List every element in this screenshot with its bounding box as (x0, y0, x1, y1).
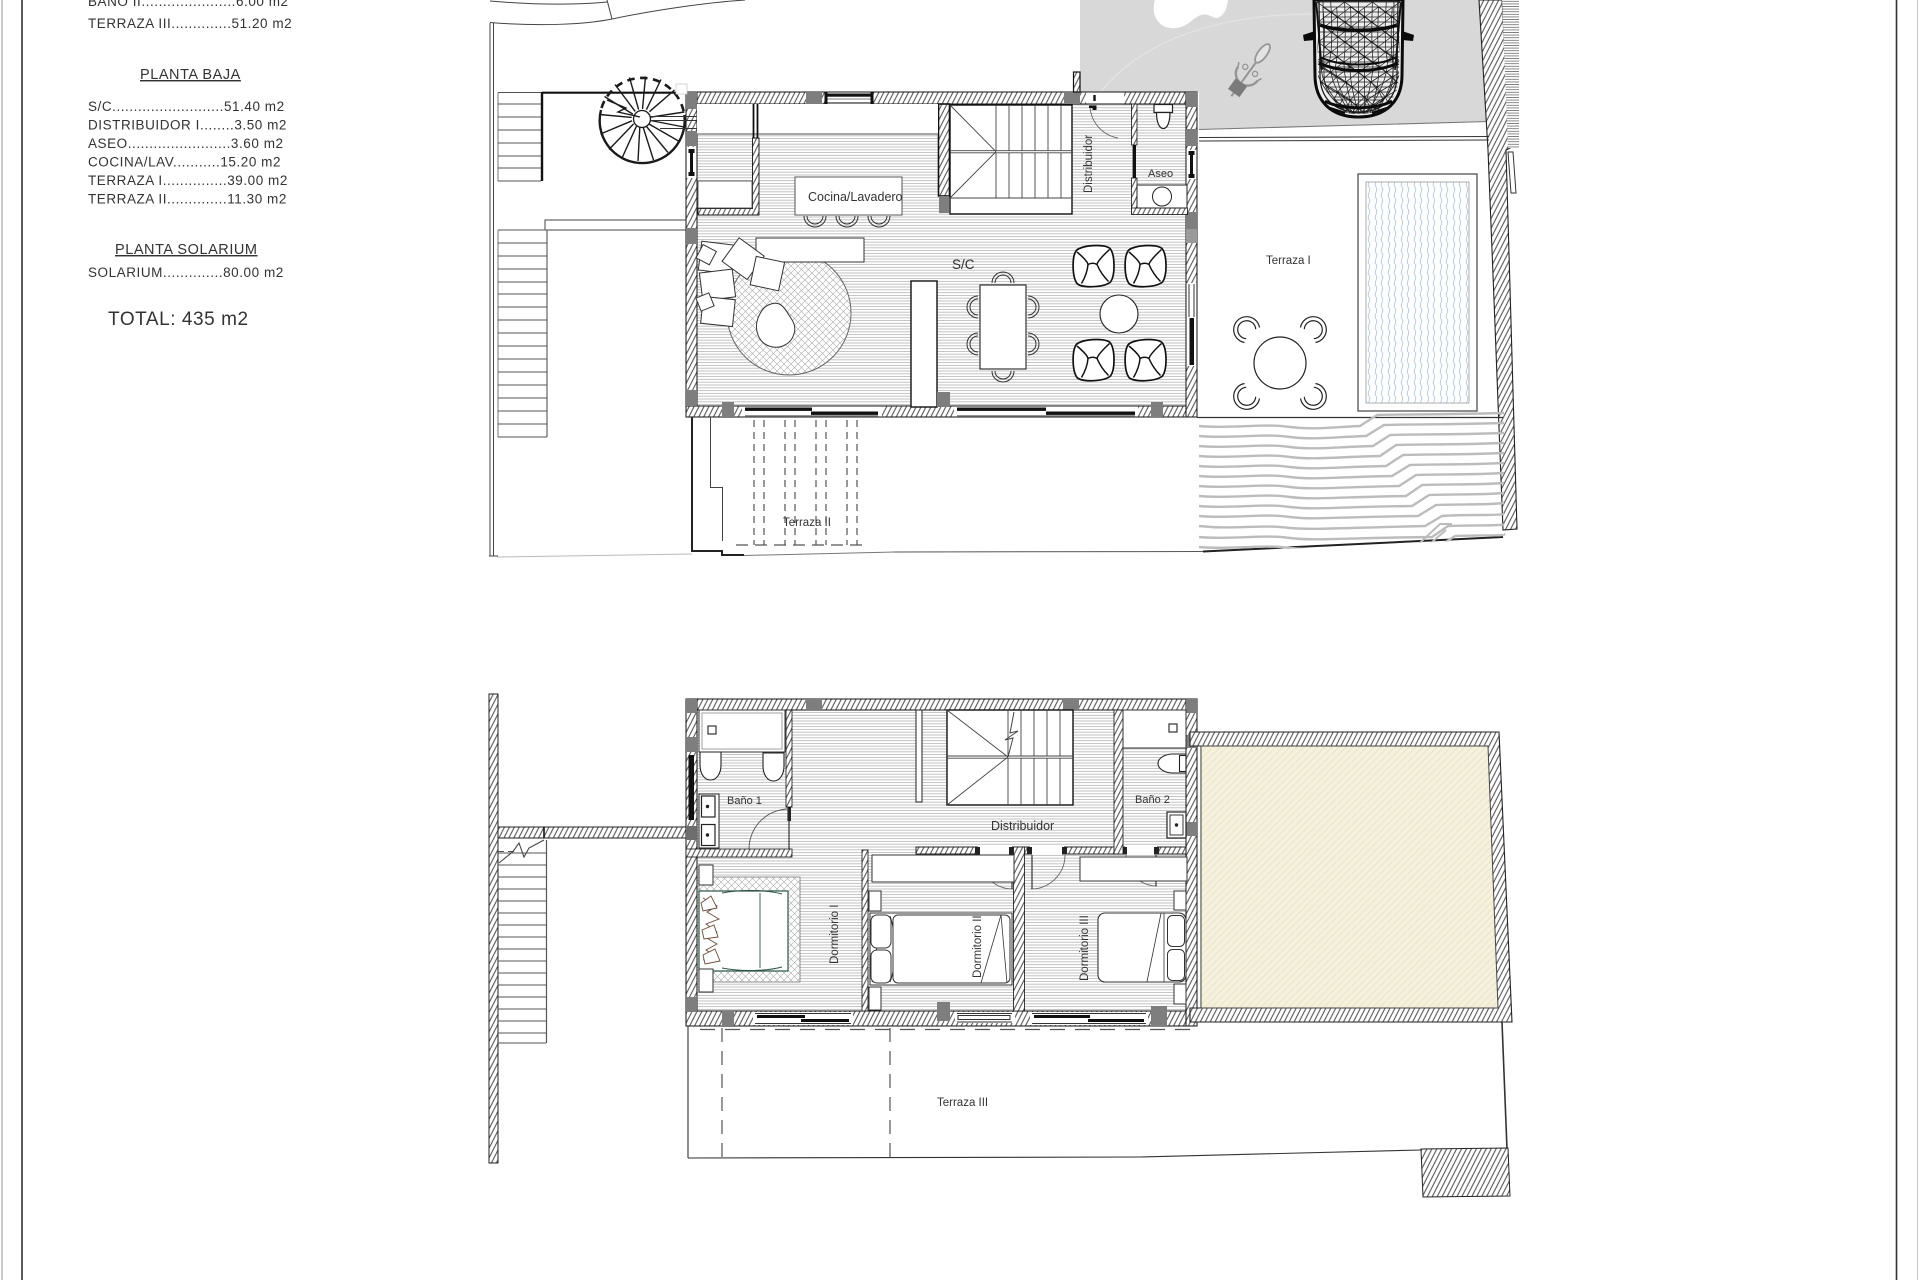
svg-text:Terraza II: Terraza II (783, 517, 831, 529)
svg-text:Distribuidor: Distribuidor (991, 819, 1054, 833)
svg-text:Dormitorio I: Dormitorio I (829, 905, 841, 964)
svg-text:Terraza I: Terraza I (1266, 255, 1311, 267)
svg-text:Dormitorio II: Dormitorio II (972, 915, 984, 978)
svg-text:Baño 1: Baño 1 (727, 795, 762, 807)
svg-text:ASEO........................3.: ASEO........................3.60 m2 (88, 136, 284, 151)
svg-text:DISTRIBUIDOR I........3.50 m2: DISTRIBUIDOR I........3.50 m2 (88, 118, 287, 133)
svg-text:Cocina/Lavadero: Cocina/Lavadero (808, 190, 903, 204)
svg-text:S/C..........................5: S/C..........................51.40 m2 (88, 99, 285, 114)
svg-text:Dormitorio III: Dormitorio III (1079, 915, 1091, 981)
svg-text:Aseo: Aseo (1148, 168, 1173, 180)
svg-text:Baño 2: Baño 2 (1135, 794, 1170, 806)
svg-text:TERRAZA II..............11.30: TERRAZA II..............11.30 m2 (88, 192, 287, 207)
svg-text:S/C: S/C (952, 257, 975, 272)
svg-text:Distribuidor: Distribuidor (1083, 135, 1095, 193)
svg-text:PLANTA SOLARIUM: PLANTA SOLARIUM (115, 242, 258, 258)
svg-text:SOLARIUM..............80.00 m2: SOLARIUM..............80.00 m2 (88, 265, 284, 280)
svg-text:BAÑO II......................6: BAÑO II......................6.00 m2 (88, 0, 289, 9)
svg-text:Terraza III: Terraza III (937, 1097, 988, 1109)
svg-text:TERRAZA I...............39.00: TERRAZA I...............39.00 m2 (88, 173, 288, 188)
svg-text:TERRAZA III..............51.20: TERRAZA III..............51.20 m2 (88, 16, 292, 31)
svg-text:PLANTA BAJA: PLANTA BAJA (140, 67, 241, 83)
svg-text:TOTAL: 435 m2: TOTAL: 435 m2 (108, 309, 249, 330)
svg-text:COCINA/LAV...........15.20 m2: COCINA/LAV...........15.20 m2 (88, 155, 281, 170)
